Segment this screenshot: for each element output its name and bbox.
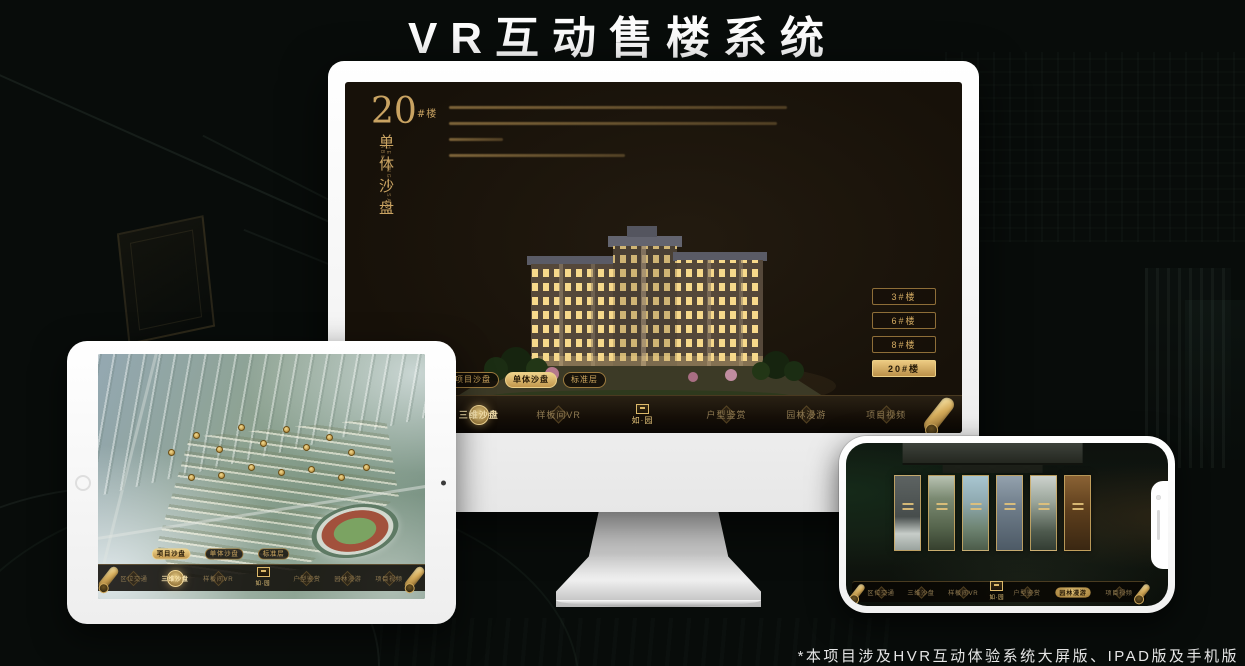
building-marker[interactable] — [188, 474, 195, 481]
nav-item-showroom-vr[interactable]: 样板间VR — [519, 408, 599, 421]
building-marker[interactable] — [218, 472, 225, 479]
building-number-suffix: #楼 — [417, 109, 437, 120]
monitor-stand — [556, 510, 761, 607]
bg-plaque — [117, 215, 215, 345]
building-marker[interactable] — [216, 446, 223, 453]
nav-item-garden-tour[interactable]: 园林漫游 — [327, 572, 368, 585]
brand-seal-icon — [636, 404, 649, 414]
building-number: 20#楼 — [371, 94, 437, 130]
subtab-standard-floor[interactable]: 标准层 — [563, 372, 606, 388]
gallery-panel-facade[interactable] — [996, 475, 1023, 551]
paragraph-line — [449, 122, 777, 125]
nav-item-3d-sandtable[interactable]: 三维沙盘 — [154, 572, 195, 585]
building-marker[interactable] — [248, 464, 255, 471]
building-button-20[interactable]: 20#楼 — [872, 360, 936, 377]
building-marker[interactable] — [348, 449, 355, 456]
nav-item-unit-plans[interactable]: 户型鉴赏 — [686, 408, 766, 421]
building-marker[interactable] — [260, 440, 267, 447]
paragraph-line — [449, 106, 787, 109]
building-marker[interactable] — [283, 426, 290, 433]
scroll-handle-icon[interactable] — [921, 394, 957, 433]
tablet-home-button[interactable] — [75, 475, 91, 491]
phone-camera-icon — [1156, 495, 1161, 500]
subtab-single-sandtable[interactable]: 单体沙盘 — [205, 549, 243, 560]
scene-gallery — [894, 475, 1091, 551]
tablet-navbar: 区位交通 三维沙盘 样板间VR 如·园 户型鉴赏 园林漫游 项目视频 — [98, 564, 425, 591]
gallery-panel-interior[interactable] — [928, 475, 955, 551]
nav-item-garden-tour[interactable]: 园林漫游 — [1047, 585, 1099, 600]
gate-beam — [903, 443, 1083, 465]
nav-item-project-video[interactable]: 项目视频 — [846, 408, 926, 421]
tablet-device: 项目沙盘 单体沙盘 标准层 区位交通 三维沙盘 样板间VR 如·园 户型鉴赏 园… — [67, 341, 456, 624]
gallery-panel-garden[interactable] — [1030, 475, 1057, 551]
building-marker[interactable] — [338, 474, 345, 481]
phone-notch — [1151, 481, 1168, 569]
nav-item-location-traffic[interactable]: 区位交通 — [861, 586, 901, 599]
subtab-standard-floor[interactable]: 标准层 — [258, 549, 289, 560]
tablet-subtabs: 项目沙盘 单体沙盘 标准层 — [152, 547, 297, 561]
description-paragraph — [449, 106, 787, 170]
nav-item-showroom-vr[interactable]: 样板间VR — [941, 586, 986, 599]
brand-logo[interactable]: 如·园 — [240, 567, 286, 589]
gallery-panel-study[interactable] — [1064, 475, 1091, 551]
heading-english-caption: THE SINGLE SAND TABLE — [379, 140, 391, 240]
nav-item-3d-sandtable[interactable]: 三维沙盘 — [901, 586, 941, 599]
bg-road-line — [0, 57, 381, 246]
bg-water — [1185, 300, 1245, 460]
building-marker[interactable] — [238, 424, 245, 431]
nav-item-garden-tour[interactable]: 园林漫游 — [766, 408, 846, 421]
bg-map-blocks — [945, 52, 1245, 242]
poster-canvas: VR互动售楼系统 20#楼 单体沙盘 THE SINGLE SAND TABLE — [0, 0, 1245, 666]
building-marker[interactable] — [326, 434, 333, 441]
building-selector: 3#楼 6#楼 8#楼 20#楼 — [872, 288, 936, 377]
building-marker[interactable] — [278, 469, 285, 476]
page-title: VR互动售楼系统 — [0, 2, 1245, 66]
building-button-8[interactable]: 8#楼 — [872, 336, 936, 353]
subtab-project-sandtable[interactable]: 项目沙盘 — [152, 549, 190, 560]
building-marker[interactable] — [303, 444, 310, 451]
paragraph-line — [449, 138, 503, 141]
nav-item-location-traffic[interactable]: 区位交通 — [113, 572, 154, 585]
footnote: *本项目涉及HVR互动体验系统大屏版、IPAD版及手机版 — [798, 645, 1239, 666]
building-button-3[interactable]: 3#楼 — [872, 288, 936, 305]
sandtable-subtabs: 项目沙盘 单体沙盘 标准层 — [447, 372, 606, 388]
building-marker[interactable] — [168, 449, 175, 456]
brand-seal-icon — [990, 581, 1003, 591]
gallery-panel-courtyard[interactable] — [894, 475, 921, 551]
gallery-panel-exterior[interactable] — [962, 475, 989, 551]
nav-item-showroom-vr[interactable]: 样板间VR — [196, 572, 241, 585]
subtab-single-sandtable[interactable]: 单体沙盘 — [505, 372, 557, 388]
tablet-screen: 项目沙盘 单体沙盘 标准层 区位交通 三维沙盘 样板间VR 如·园 户型鉴赏 园… — [98, 354, 425, 599]
brand-logo[interactable]: 如·园 — [599, 404, 687, 426]
building-marker[interactable] — [363, 464, 370, 471]
paragraph-line — [449, 154, 625, 157]
phone-speaker-icon — [1157, 510, 1160, 540]
building-marker[interactable] — [308, 466, 315, 473]
brand-seal-icon — [257, 567, 270, 577]
nav-item-unit-plans[interactable]: 户型鉴赏 — [1007, 586, 1047, 599]
phone-navbar: 区位交通 三维沙盘 样板间VR 如·园 户型鉴赏 园林漫游 项目视频 — [852, 581, 1146, 602]
phone-screen: 区位交通 三维沙盘 样板间VR 如·园 户型鉴赏 园林漫游 项目视频 — [846, 443, 1168, 606]
brand-logo[interactable]: 如·园 — [986, 581, 1008, 603]
phone-device: 区位交通 三维沙盘 样板间VR 如·园 户型鉴赏 园林漫游 项目视频 — [839, 436, 1175, 613]
nav-item-unit-plans[interactable]: 户型鉴赏 — [286, 572, 327, 585]
building-button-6[interactable]: 6#楼 — [872, 312, 936, 329]
tablet-camera-icon — [441, 480, 446, 485]
building-marker[interactable] — [193, 432, 200, 439]
